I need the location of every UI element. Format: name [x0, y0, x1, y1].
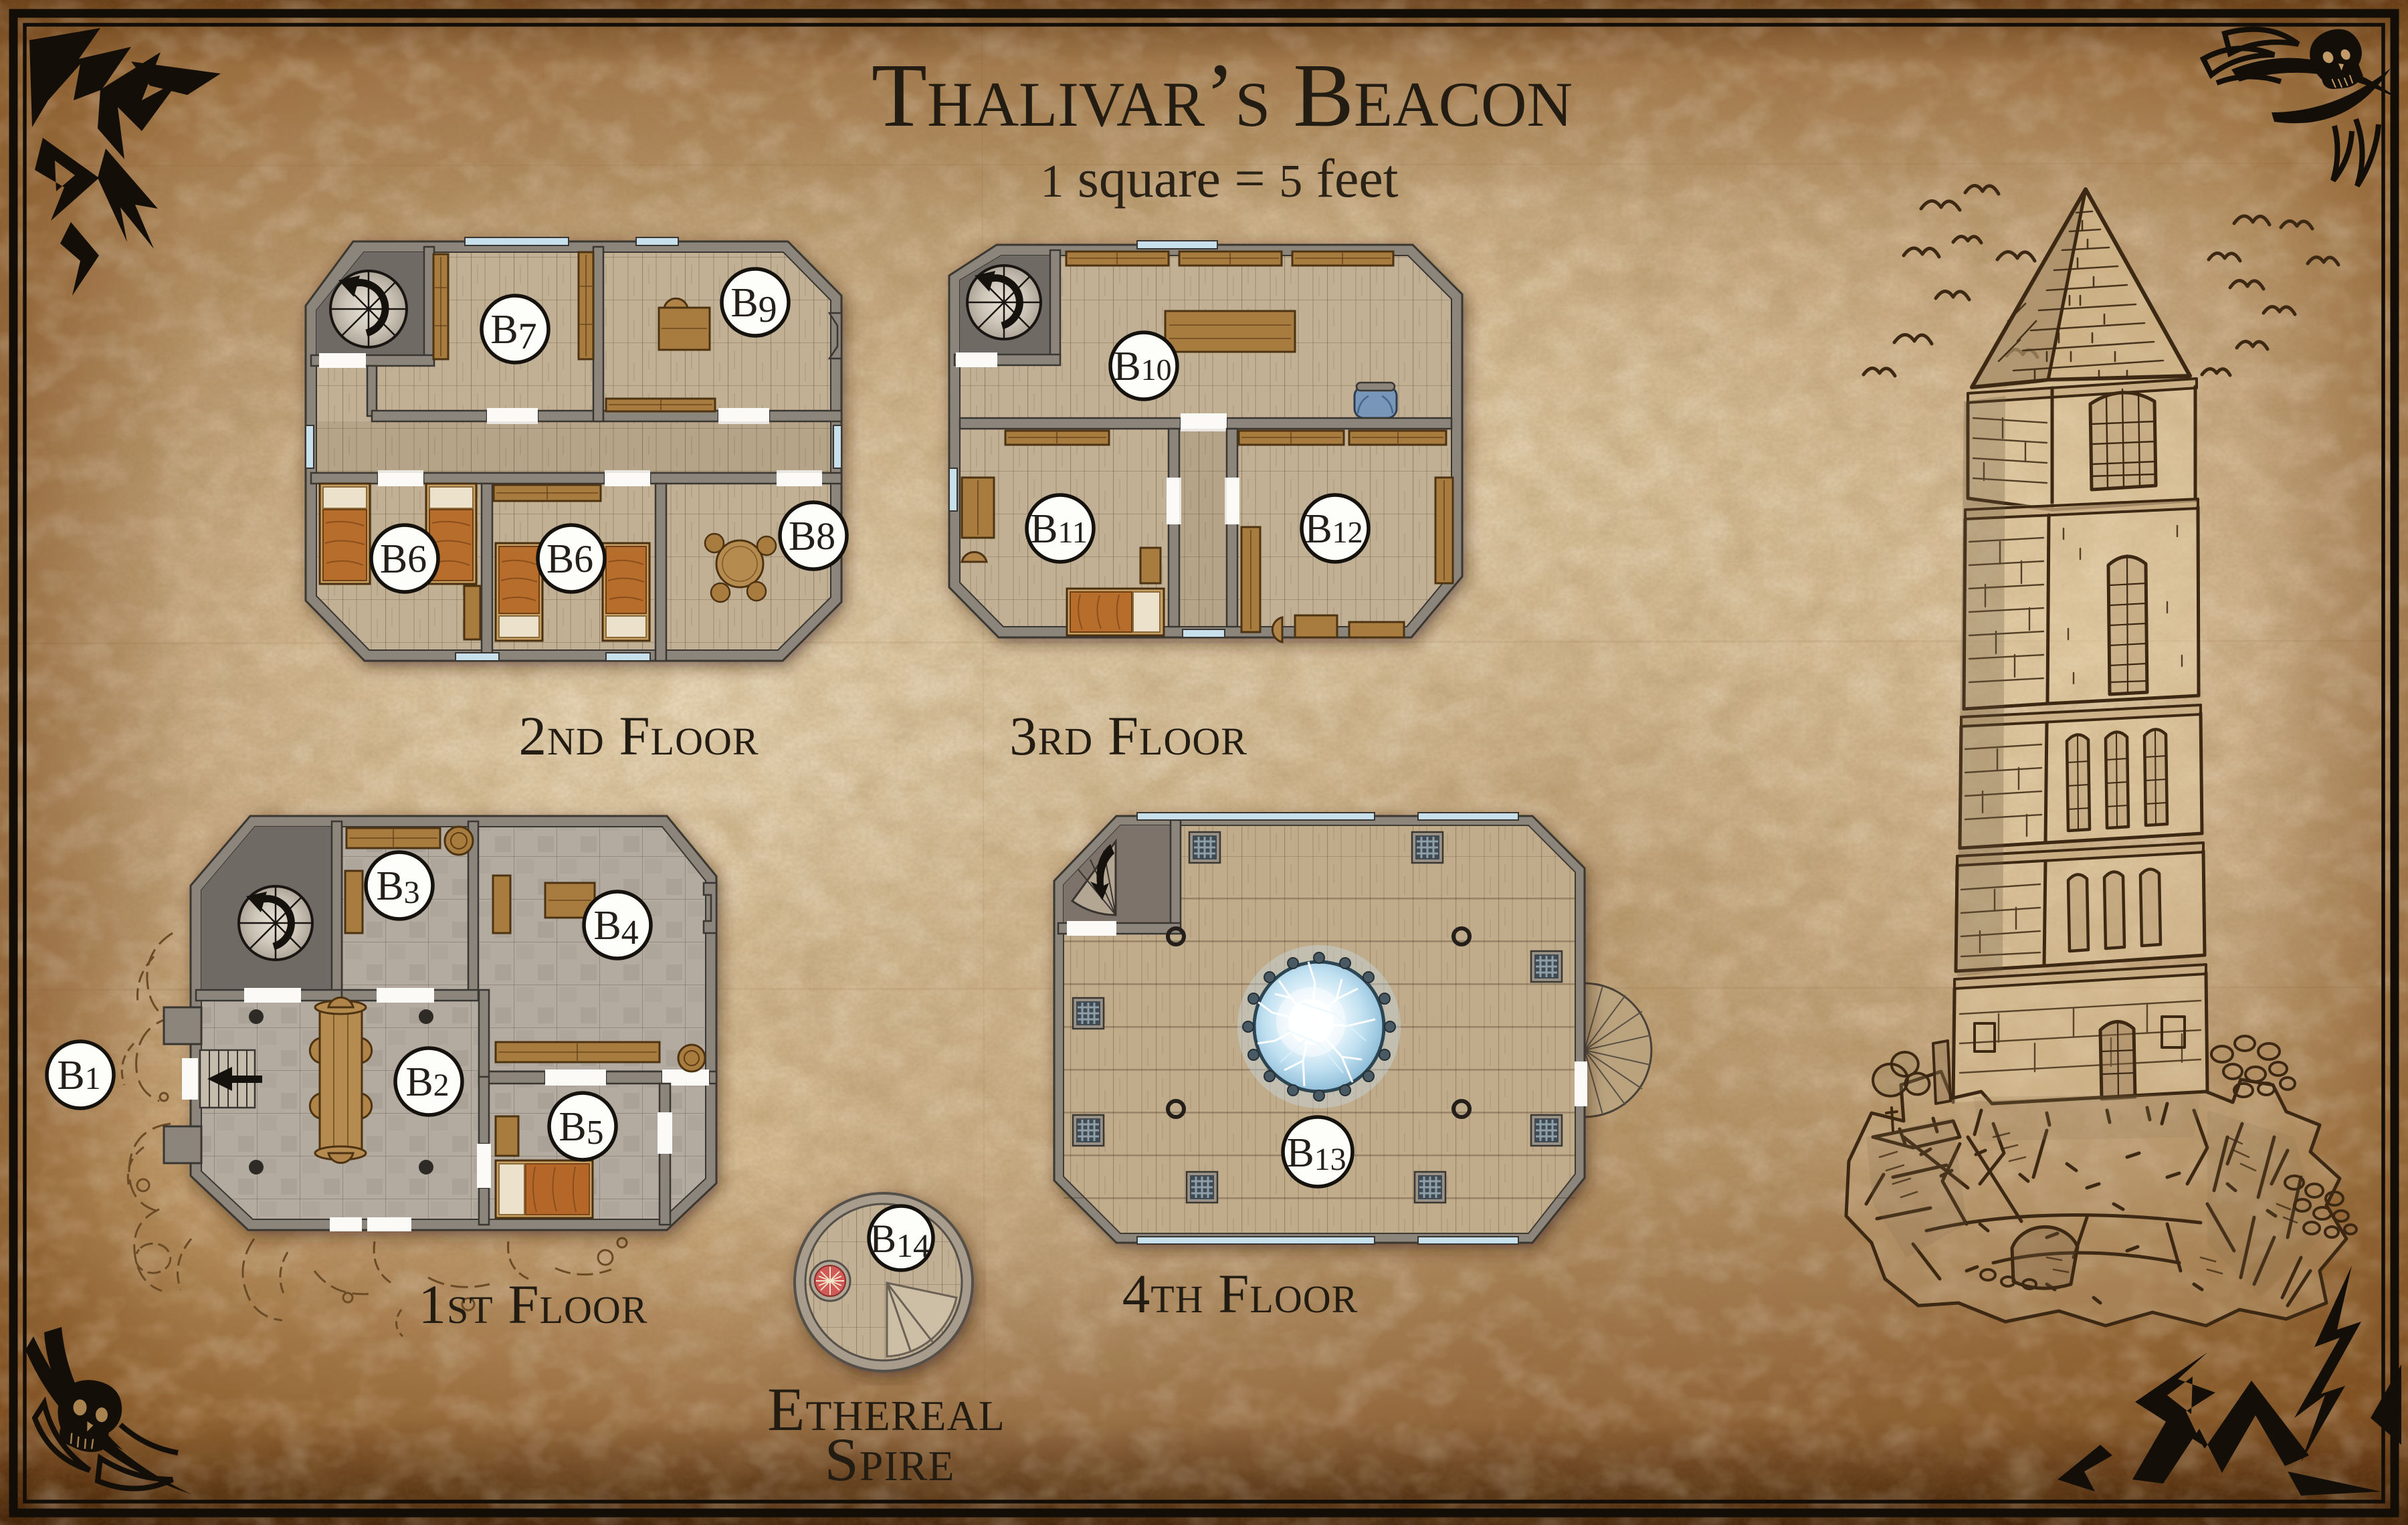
svg-text:B6: B6 [380, 536, 427, 582]
svg-text:1st Floor: 1st Floor [419, 1274, 648, 1335]
svg-text:B8: B8 [789, 514, 835, 559]
svg-text:4th Floor: 4th Floor [1122, 1263, 1359, 1324]
svg-text:Thalivar’s Beacon: Thalivar’s Beacon [872, 45, 1573, 146]
svg-text:Spire: Spire [825, 1425, 955, 1494]
svg-text:B6: B6 [546, 536, 593, 582]
svg-text:1 square = 5 feet: 1 square = 5 feet [1040, 148, 1398, 209]
svg-text:3rd Floor: 3rd Floor [1009, 705, 1247, 767]
svg-text:2nd Floor: 2nd Floor [518, 705, 759, 767]
